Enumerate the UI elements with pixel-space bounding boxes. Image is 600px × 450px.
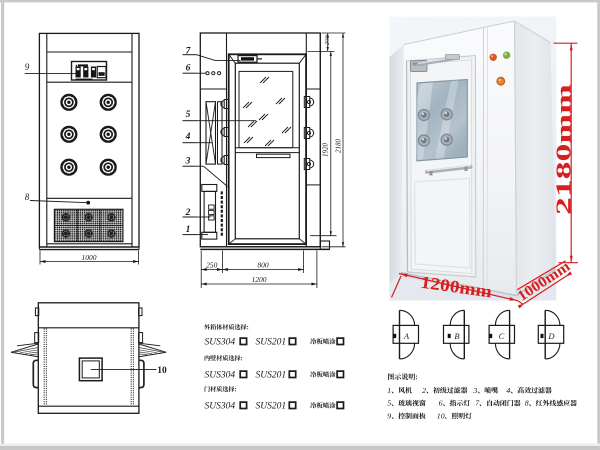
- svg-text:2180mm: 2180mm: [553, 84, 576, 215]
- svg-text:3: 3: [185, 157, 191, 167]
- svg-text:5: 5: [387, 399, 391, 408]
- svg-text:1000: 1000: [82, 253, 97, 262]
- svg-text:SUS201: SUS201: [256, 337, 287, 347]
- svg-text:1920: 1920: [322, 143, 330, 158]
- svg-text:4: 4: [185, 132, 191, 142]
- svg-text:B: B: [454, 331, 459, 341]
- svg-text:6: 6: [186, 64, 191, 74]
- svg-text:6: 6: [439, 399, 443, 408]
- svg-text:8: 8: [525, 399, 529, 408]
- svg-text:SUS201: SUS201: [256, 401, 287, 411]
- svg-text:9: 9: [387, 411, 391, 420]
- svg-text:2180: 2180: [334, 139, 342, 154]
- svg-text:4: 4: [506, 386, 510, 395]
- svg-text:C: C: [499, 331, 505, 341]
- svg-text:8: 8: [25, 192, 30, 202]
- svg-text:10: 10: [437, 411, 445, 420]
- svg-text:SUS304: SUS304: [205, 401, 236, 411]
- svg-text:D: D: [547, 331, 555, 341]
- svg-text:5: 5: [186, 110, 191, 120]
- svg-text:250: 250: [206, 261, 218, 270]
- svg-text:A: A: [403, 331, 410, 341]
- svg-text:9: 9: [25, 62, 30, 72]
- svg-text:SUS304: SUS304: [205, 370, 236, 380]
- svg-text:2: 2: [422, 386, 426, 395]
- svg-text:SUS201: SUS201: [256, 370, 287, 380]
- svg-text:800: 800: [257, 261, 269, 270]
- svg-text:1: 1: [387, 386, 391, 395]
- svg-text:SUS304: SUS304: [205, 337, 236, 347]
- svg-text:10: 10: [157, 366, 167, 376]
- svg-text:3: 3: [472, 386, 477, 395]
- svg-text:1200: 1200: [252, 275, 267, 284]
- svg-text:1: 1: [186, 225, 191, 235]
- svg-text:2: 2: [185, 208, 191, 218]
- svg-text:200: 200: [324, 35, 331, 46]
